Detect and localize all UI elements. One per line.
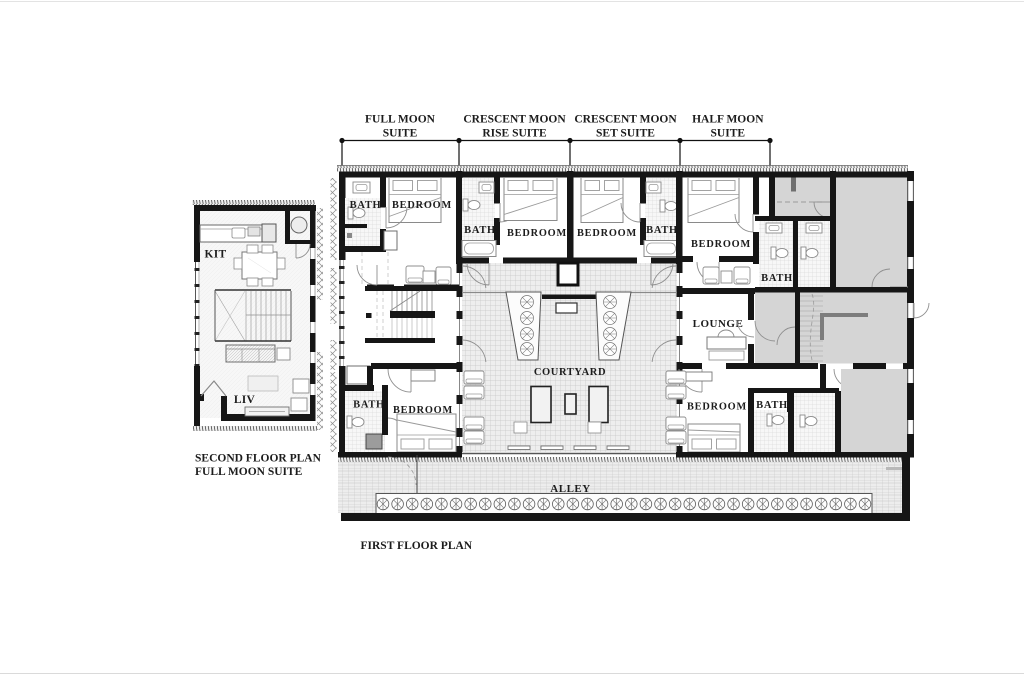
svg-text:SUITE: SUITE xyxy=(711,128,746,140)
svg-text:SECOND FLOOR PLAN: SECOND FLOOR PLAN xyxy=(195,453,322,465)
svg-text:FULL MOON: FULL MOON xyxy=(365,114,436,126)
svg-text:BATH: BATH xyxy=(646,225,678,236)
svg-text:BEDROOM: BEDROOM xyxy=(687,402,747,413)
svg-text:COURTYARD: COURTYARD xyxy=(534,367,606,378)
svg-text:BATH: BATH xyxy=(761,273,793,284)
svg-text:LOUNGE: LOUNGE xyxy=(693,318,744,330)
svg-text:BATH: BATH xyxy=(464,225,496,236)
svg-text:SUITE: SUITE xyxy=(383,128,418,140)
svg-text:BEDROOM: BEDROOM xyxy=(691,239,751,250)
svg-text:SET SUITE: SET SUITE xyxy=(596,128,655,140)
svg-text:BATH: BATH xyxy=(756,400,788,411)
svg-text:CRESCENT MOON: CRESCENT MOON xyxy=(574,114,677,126)
svg-text:HALF MOON: HALF MOON xyxy=(692,114,764,126)
svg-text:FULL MOON SUITE: FULL MOON SUITE xyxy=(195,466,303,478)
svg-text:KIT: KIT xyxy=(205,249,227,261)
svg-text:LIV: LIV xyxy=(234,394,256,406)
svg-text:FIRST FLOOR PLAN: FIRST FLOOR PLAN xyxy=(361,540,473,552)
svg-text:CRESCENT MOON: CRESCENT MOON xyxy=(463,114,566,126)
svg-text:RISE SUITE: RISE SUITE xyxy=(482,128,547,140)
svg-text:BEDROOM: BEDROOM xyxy=(392,200,452,211)
svg-text:BEDROOM: BEDROOM xyxy=(577,228,637,239)
svg-text:BATH: BATH xyxy=(353,400,385,411)
svg-text:BEDROOM: BEDROOM xyxy=(507,228,567,239)
svg-text:BATH: BATH xyxy=(350,200,382,211)
